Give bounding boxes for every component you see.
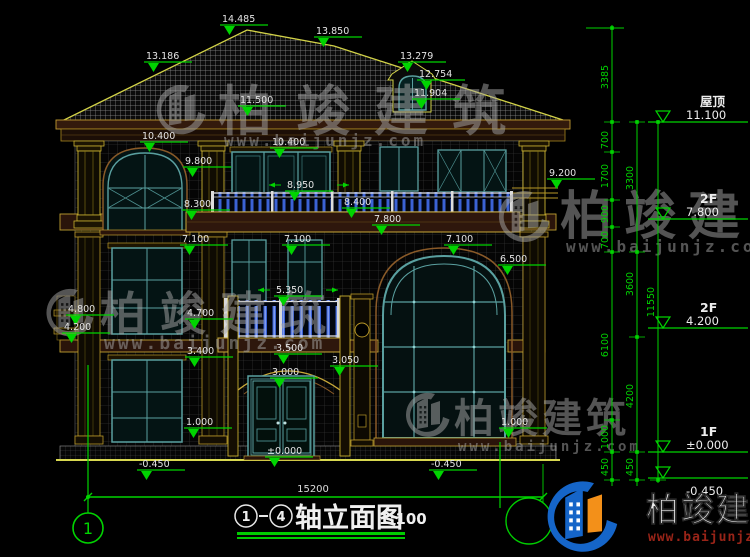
- logo-window-dot: [515, 212, 518, 215]
- logo-window-dot: [424, 416, 426, 419]
- ornament-post: [351, 294, 373, 446]
- marker-value: 12.754: [419, 69, 452, 80]
- logo-window-dot: [569, 518, 573, 522]
- logo-window-dot: [569, 510, 573, 514]
- level-name: 2F: [700, 191, 717, 206]
- chain-dimension-value: 11550: [646, 287, 657, 317]
- chain-dimension-value: 3600: [625, 272, 636, 296]
- chain-dimension-value: 3385: [600, 65, 611, 89]
- logo-window-dot: [420, 421, 422, 424]
- title-axis-from: 1: [241, 510, 250, 525]
- marker-value: 3.050: [332, 355, 359, 366]
- logo-window-dot: [520, 206, 523, 209]
- logo-building-icon: [185, 94, 195, 121]
- marker-value: 14.485: [222, 14, 255, 25]
- marker-value: 4.800: [68, 304, 95, 315]
- marker-value: 3.400: [187, 346, 214, 357]
- chain-tick-dot: [610, 120, 614, 124]
- logo-window-dot: [172, 111, 175, 114]
- pilaster: [75, 232, 103, 444]
- watermark-url: www.baijunjz.com: [224, 131, 426, 150]
- logo-window-dot: [515, 218, 518, 221]
- cad-elevation-drawing: 柏竣建筑www.baijunjz.com柏竣建筑www.baijunjz.com…: [0, 0, 750, 557]
- logo-window-dot: [420, 411, 422, 414]
- chain-dimension-value: 700: [600, 131, 611, 149]
- chain-dimension-value: 450: [625, 458, 636, 476]
- ground-dimension-value: 15200: [297, 484, 329, 495]
- logo-window-dot: [576, 526, 580, 530]
- chain-tick-dot: [635, 250, 639, 254]
- marker-value: 13.850: [316, 26, 349, 37]
- level-elevation: ±0.000: [686, 438, 729, 452]
- logo-window-dot: [424, 411, 426, 414]
- chain-tick-dot: [656, 478, 660, 482]
- marker-value: 10.400: [272, 137, 305, 148]
- logo-window-dot: [424, 406, 426, 409]
- watermark-brand: 柏竣建筑: [646, 490, 750, 529]
- pilaster: [74, 141, 104, 228]
- title-axis-to: 4: [276, 510, 285, 525]
- marker-value: ±0.000: [267, 446, 302, 457]
- marker-value: 7.100: [284, 234, 311, 245]
- marker-value: 13.279: [400, 51, 433, 62]
- chain-dimension-value: 900: [600, 205, 611, 223]
- chain-dimension-value: 1000: [600, 425, 611, 449]
- chain-tick-dot: [610, 26, 614, 30]
- marker-value: 8.300: [184, 199, 211, 210]
- marker-value: 1.000: [186, 417, 213, 428]
- chain-dimension-value: 6100: [600, 333, 611, 357]
- logo-window-dot: [177, 111, 180, 114]
- title-underline-1: [237, 532, 405, 535]
- logo-window-dot: [177, 116, 180, 119]
- chain-tick-dot: [610, 225, 614, 229]
- marker-value: 10.400: [142, 131, 175, 142]
- chain-dimension-value: 3300: [625, 166, 636, 190]
- chain-tick-dot: [610, 198, 614, 202]
- logo-window-dot: [61, 314, 63, 317]
- chain-tick-dot: [610, 150, 614, 154]
- logo-window-dot: [424, 421, 426, 424]
- logo-window-dot: [420, 416, 422, 419]
- chain-tick-dot: [635, 450, 639, 454]
- chain-dimension-value: 450: [600, 458, 611, 476]
- marker-value: 3.500: [276, 343, 303, 354]
- logo-window-dot: [177, 100, 180, 103]
- marker-value: 1.000: [501, 417, 528, 428]
- door-handle: [277, 422, 280, 425]
- marker-value: 13.186: [146, 51, 179, 62]
- marker-value: 9.200: [549, 168, 576, 179]
- level-name: 2F: [700, 300, 717, 315]
- watermark-url: www.baijunjz.com: [648, 530, 750, 545]
- logo-window-dot: [172, 116, 175, 119]
- logo-window-dot: [61, 309, 63, 312]
- level-name: 1F: [700, 424, 717, 439]
- logo-window-dot: [61, 303, 63, 306]
- level-elevation: 11.100: [686, 108, 726, 122]
- level-elevation: 4.200: [686, 314, 719, 328]
- logo-window-dot: [520, 218, 523, 221]
- marker-value: 4.700: [187, 308, 214, 319]
- marker-value: 9.800: [185, 156, 212, 167]
- logo-window-dot: [172, 105, 175, 108]
- logo-window-dot: [576, 502, 580, 506]
- chain-tick-dot: [610, 250, 614, 254]
- logo-window-dot: [569, 526, 573, 530]
- title-underline-2: [237, 537, 405, 539]
- chain-tick-dot: [635, 120, 639, 124]
- marker-value: 11.904: [414, 88, 447, 99]
- logo-building-icon: [431, 401, 440, 425]
- marker-value: 7.100: [182, 234, 209, 245]
- marker-value: 4.200: [64, 322, 91, 333]
- logo-window-dot: [576, 518, 580, 522]
- logo-window-dot: [515, 224, 518, 227]
- marker-value: 8.950: [287, 180, 314, 191]
- marker-value: 7.800: [374, 214, 401, 225]
- chain-dimension-value: 1700: [600, 164, 611, 188]
- marker-value: 11.500: [240, 95, 273, 106]
- drawing-canvas: 柏竣建筑www.baijunjz.com柏竣建筑www.baijunjz.com…: [0, 0, 750, 557]
- chain-tick-dot: [635, 478, 639, 482]
- marker-value: 5.350: [276, 285, 303, 296]
- logo-window-dot: [520, 212, 523, 215]
- marker-value: 3.000: [272, 367, 299, 378]
- marker-value: 8.400: [344, 197, 371, 208]
- door-handle: [284, 422, 287, 425]
- logo-building-icon: [528, 200, 538, 228]
- marker-value: 7.100: [446, 234, 473, 245]
- arched-window-3f-left: [100, 148, 190, 235]
- marker-value: 6.500: [500, 254, 527, 265]
- window-3f-right-a: [380, 147, 418, 191]
- chain-dimension-value: 4200: [625, 384, 636, 408]
- logo-window-dot: [569, 502, 573, 506]
- logo-window-dot: [177, 105, 180, 108]
- logo-window-dot: [520, 224, 523, 227]
- axis-bubble-1-label: 1: [83, 519, 93, 538]
- window-1f-left: [108, 355, 186, 442]
- level-elevation: 7.800: [686, 205, 719, 219]
- marker-value: -0.450: [431, 459, 462, 470]
- logo-window-dot: [172, 100, 175, 103]
- logo-window-dot: [420, 406, 422, 409]
- window-3f-right-b: [438, 150, 506, 192]
- chain-tick-dot: [610, 450, 614, 454]
- chain-tick-dot: [635, 335, 639, 339]
- level-name: 屋顶: [700, 94, 726, 109]
- title-scale: 1:100: [379, 510, 427, 528]
- marker-value: -0.450: [139, 459, 170, 470]
- chain-tick-dot: [610, 478, 614, 482]
- logo-building-icon: [588, 494, 602, 532]
- logo-window-dot: [515, 206, 518, 209]
- logo-window-dot: [576, 510, 580, 514]
- chain-dimension-value: 700: [600, 231, 611, 249]
- chain-tick-dot: [610, 418, 614, 422]
